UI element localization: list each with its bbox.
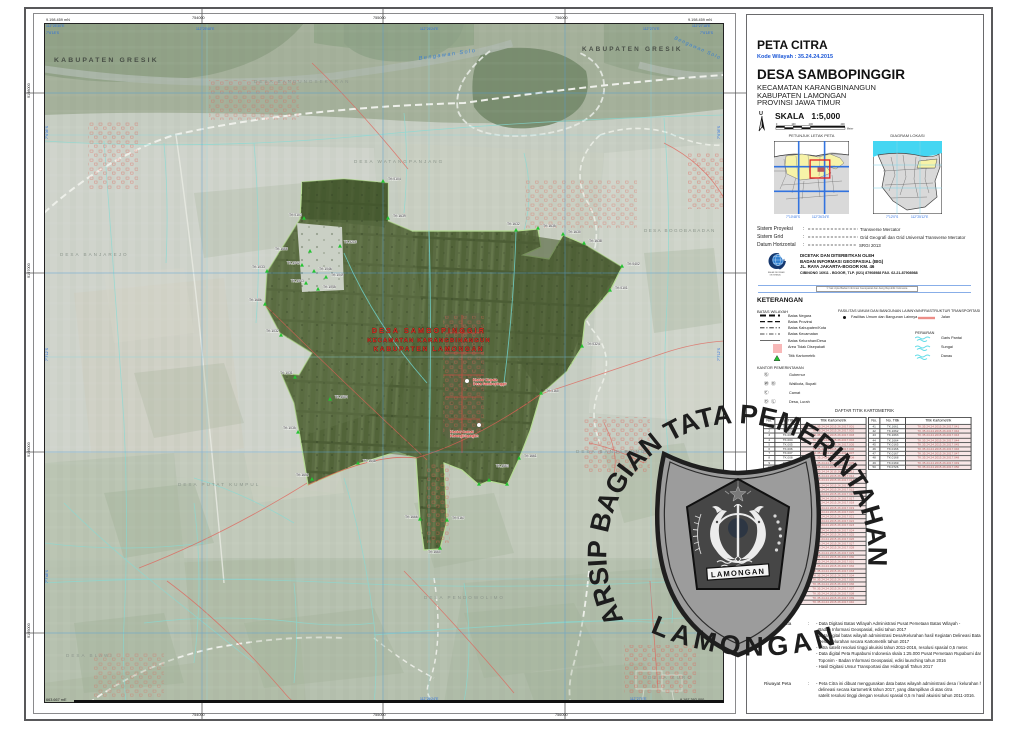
svg-text:9.197.392.000: 9.197.392.000	[680, 698, 704, 702]
svg-text:112°26'24"E: 112°26'24"E	[420, 27, 439, 31]
svg-text:7°7'48"S: 7°7'48"S	[717, 569, 721, 583]
svg-text:112°27'0"E: 112°27'0"E	[630, 697, 647, 701]
svg-text:755000: 755000	[373, 16, 386, 20]
svg-text:9195000: 9195000	[27, 623, 31, 638]
svg-text:112°26'24"E: 112°26'24"E	[420, 697, 439, 701]
svg-text:112°27'0"E: 112°27'0"E	[643, 27, 660, 31]
svg-text:755000: 755000	[373, 713, 386, 717]
svg-text:7°7'48"S: 7°7'48"S	[45, 569, 49, 583]
svg-text:112°27'18"E: 112°27'18"E	[692, 24, 711, 28]
svg-text:754000: 754000	[192, 16, 205, 20]
svg-text:754000: 754000	[192, 713, 205, 717]
svg-text:112°25'48"E: 112°25'48"E	[196, 27, 215, 31]
svg-text:9196000: 9196000	[27, 442, 31, 457]
svg-text:756000: 756000	[555, 713, 568, 717]
svg-text:7°6'36"S: 7°6'36"S	[45, 125, 49, 139]
svg-text:9.198.459 mN: 9.198.459 mN	[46, 18, 70, 22]
svg-text:9198000: 9198000	[27, 83, 31, 98]
svg-text:9197000: 9197000	[27, 263, 31, 278]
svg-text:112°25'30"E: 112°25'30"E	[46, 24, 65, 28]
svg-text:756000: 756000	[555, 16, 568, 20]
svg-text:9.198.459 mN: 9.198.459 mN	[688, 18, 712, 22]
svg-text:7°6'36"S: 7°6'36"S	[717, 125, 721, 139]
svg-text:7°7'12"S: 7°7'12"S	[717, 347, 721, 361]
svg-text:7°7'12"S: 7°7'12"S	[45, 347, 49, 361]
svg-text:7°6'18"S: 7°6'18"S	[46, 31, 60, 35]
svg-text:7°6'18"S: 7°6'18"S	[700, 31, 714, 35]
svg-text:663.667 mE: 663.667 mE	[46, 698, 67, 702]
